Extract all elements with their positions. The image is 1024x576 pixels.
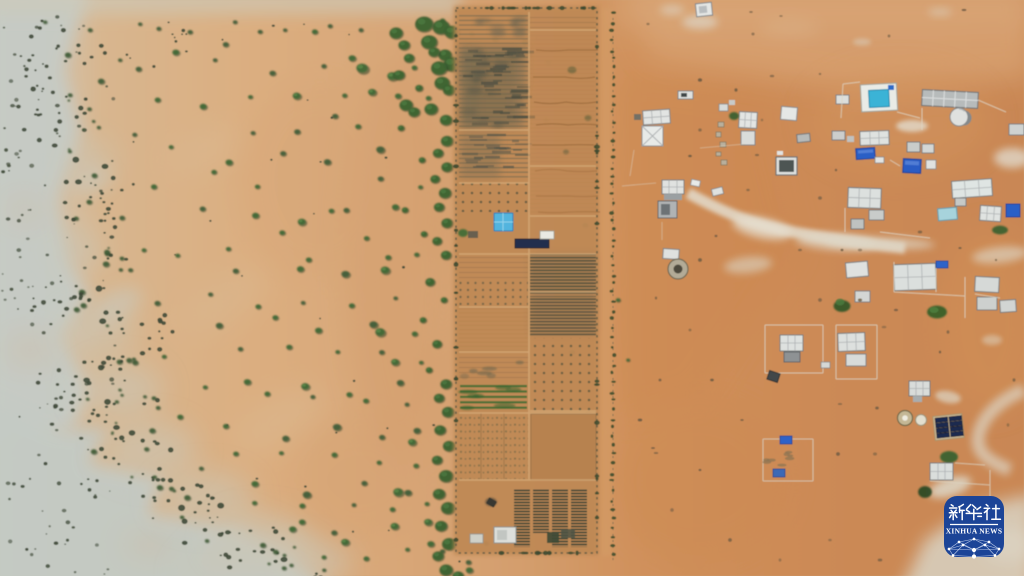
- svg-text:XINHUA NEWS: XINHUA NEWS: [946, 527, 1002, 536]
